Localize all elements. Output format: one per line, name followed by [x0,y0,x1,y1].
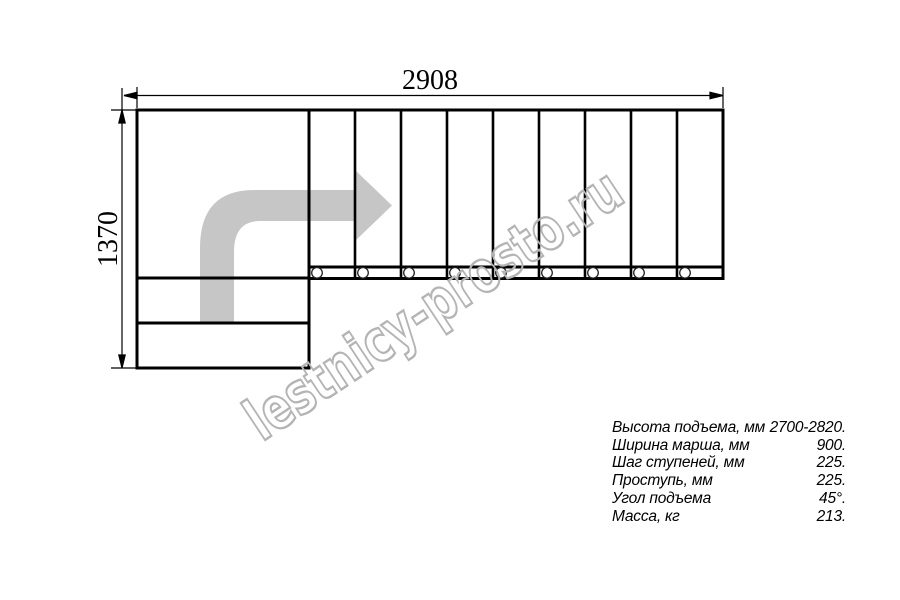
walk-direction-arrow-icon [200,170,392,324]
fastener-marker [680,268,691,279]
spec-row-mass: Масса, кг 213. [612,508,846,526]
spec-value: 45°. [819,490,846,508]
spec-value: 213. [817,508,846,526]
spec-value: 225. [817,472,846,490]
spec-row-tread: Проступь, мм 225. [612,472,846,490]
spec-row-step-pitch: Шаг ступеней, мм 225. [612,454,846,472]
dim-arrow-up [119,110,125,123]
fastener-marker [312,268,323,279]
dim-arrow-down [119,355,125,368]
specs-table: Высота подъема, мм 2700-2820. Ширина мар… [612,419,846,525]
height-dimension-label: 1370 [93,211,124,267]
spec-row-height: Высота подъема, мм 2700-2820. [612,419,846,437]
spec-label: Ширина марша, мм [612,437,750,455]
fastener-marker [588,268,599,279]
width-dimension-label: 2908 [402,65,458,96]
spec-label: Угол подъема [612,490,711,508]
lower-step-1 [137,323,309,368]
dim-arrow-left [124,92,137,98]
spec-label: Высота подъема, мм [612,419,765,437]
staircase-plan-page: 2908 1370 lestnicy-prosto.ru Высота подъ… [0,0,900,600]
spec-row-march-width: Ширина марша, мм 900. [612,437,846,455]
spec-value: 2700-2820. [770,419,846,437]
spec-label: Масса, кг [612,508,680,526]
spec-value: 900. [817,437,846,455]
spec-value: 225. [817,454,846,472]
fastener-marker [358,268,369,279]
fastener-marker [634,268,645,279]
spec-label: Шаг ступеней, мм [612,454,745,472]
dim-arrow-right [710,92,723,98]
spec-row-angle: Угол подъема 45°. [612,490,846,508]
spec-label: Проступь, мм [612,472,713,490]
